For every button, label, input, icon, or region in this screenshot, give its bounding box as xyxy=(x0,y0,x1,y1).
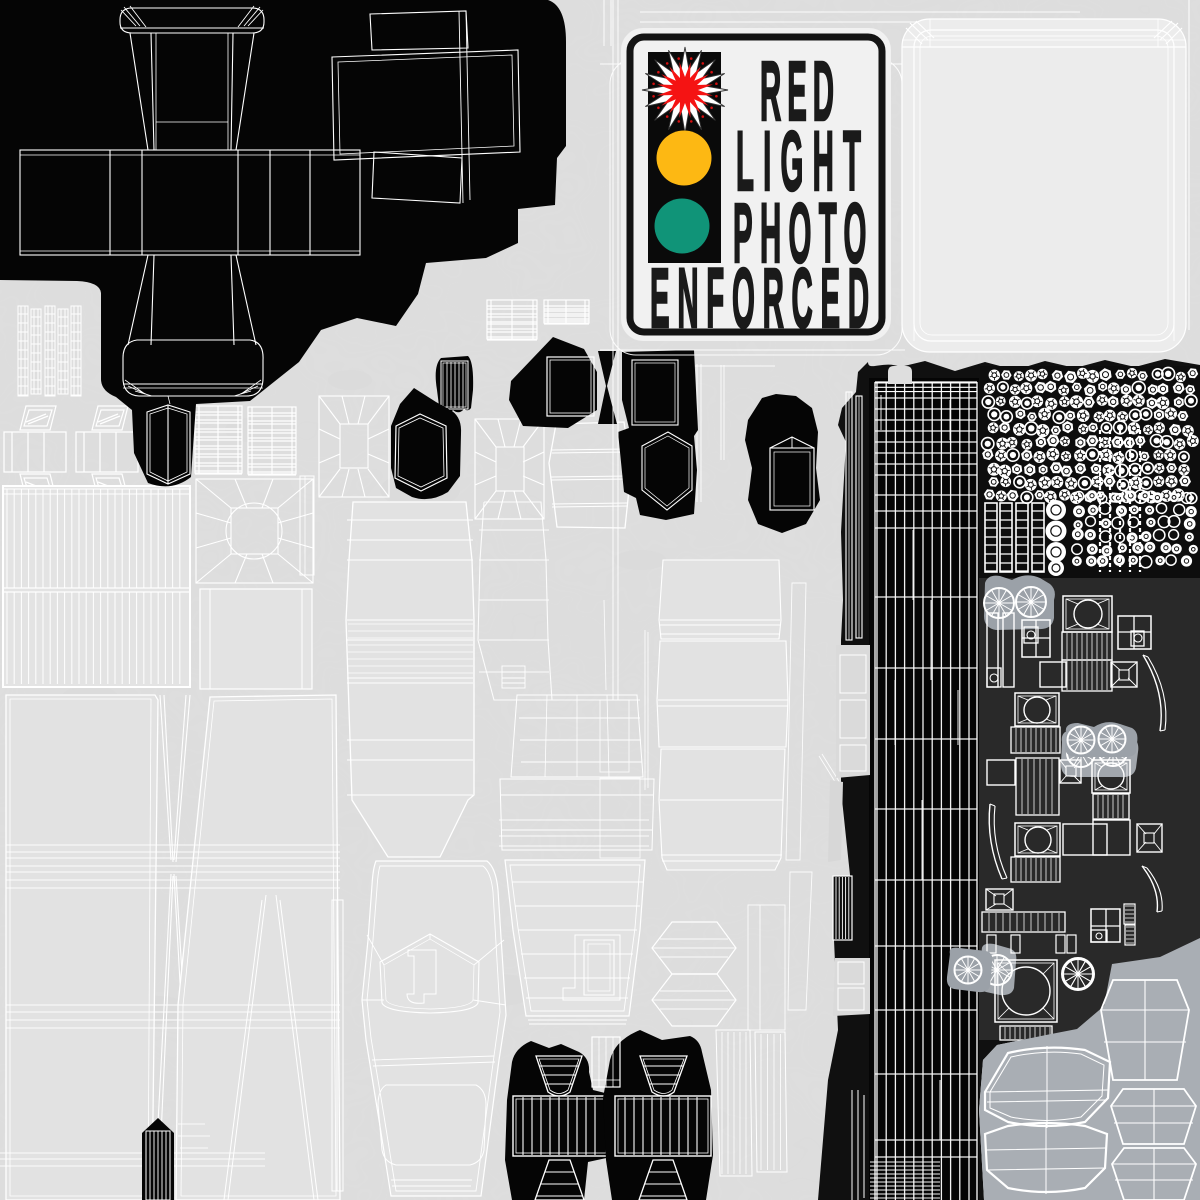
svg-text:ENFORCED: ENFORCED xyxy=(650,252,877,345)
